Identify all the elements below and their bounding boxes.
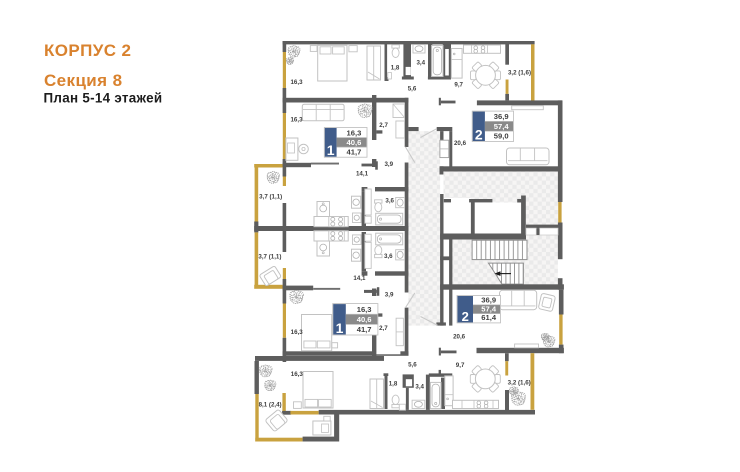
- svg-text:1: 1: [327, 142, 335, 158]
- svg-text:3,9: 3,9: [385, 292, 394, 299]
- svg-text:16,3: 16,3: [347, 128, 362, 137]
- svg-text:2: 2: [475, 127, 483, 143]
- svg-text:1: 1: [336, 320, 344, 336]
- svg-text:КОРПУС 2: КОРПУС 2: [44, 41, 131, 60]
- svg-text:59,0: 59,0: [494, 132, 509, 141]
- svg-text:14,1: 14,1: [356, 171, 369, 178]
- svg-text:2,7: 2,7: [379, 122, 388, 129]
- svg-text:9,7: 9,7: [456, 362, 465, 369]
- svg-text:41,7: 41,7: [357, 325, 372, 334]
- svg-text:14,1: 14,1: [353, 275, 366, 282]
- svg-text:2,7: 2,7: [379, 325, 388, 332]
- svg-text:16,3: 16,3: [291, 329, 304, 336]
- svg-text:3,9: 3,9: [384, 161, 393, 168]
- svg-text:Секция 8: Секция 8: [44, 71, 122, 90]
- svg-text:3,6: 3,6: [384, 253, 393, 260]
- svg-text:3,2 (1,6): 3,2 (1,6): [508, 69, 531, 76]
- svg-text:57,4: 57,4: [494, 122, 510, 131]
- svg-text:5,6: 5,6: [408, 86, 417, 93]
- svg-text:План 5-14 этажей: План 5-14 этажей: [44, 91, 163, 106]
- svg-text:36,9: 36,9: [481, 296, 496, 305]
- svg-text:3,4: 3,4: [415, 384, 424, 391]
- svg-text:3,7 (1,1): 3,7 (1,1): [259, 193, 282, 200]
- svg-text:1,8: 1,8: [389, 381, 398, 388]
- svg-text:1,8: 1,8: [391, 65, 400, 72]
- svg-text:3,6: 3,6: [385, 197, 394, 204]
- svg-text:16,3: 16,3: [290, 117, 303, 124]
- svg-text:3,2 (1,6): 3,2 (1,6): [508, 379, 531, 386]
- svg-text:8,1 (2,4): 8,1 (2,4): [259, 401, 282, 408]
- svg-text:40,6: 40,6: [357, 315, 372, 324]
- svg-text:20,6: 20,6: [453, 333, 466, 340]
- svg-text:3,7 (1,1): 3,7 (1,1): [258, 253, 281, 260]
- svg-text:36,9: 36,9: [494, 112, 509, 121]
- svg-text:2: 2: [462, 309, 469, 324]
- svg-text:57,4: 57,4: [481, 304, 497, 313]
- svg-text:40,6: 40,6: [347, 138, 362, 147]
- svg-text:41,7: 41,7: [347, 147, 362, 156]
- svg-text:3,4: 3,4: [416, 60, 425, 67]
- svg-text:16,3: 16,3: [290, 79, 303, 86]
- svg-text:5,6: 5,6: [408, 361, 417, 368]
- svg-text:61,4: 61,4: [481, 313, 497, 322]
- svg-text:9,7: 9,7: [454, 82, 463, 89]
- svg-text:16,3: 16,3: [357, 305, 372, 314]
- svg-text:16,3: 16,3: [291, 371, 304, 378]
- svg-text:20,6: 20,6: [454, 140, 467, 147]
